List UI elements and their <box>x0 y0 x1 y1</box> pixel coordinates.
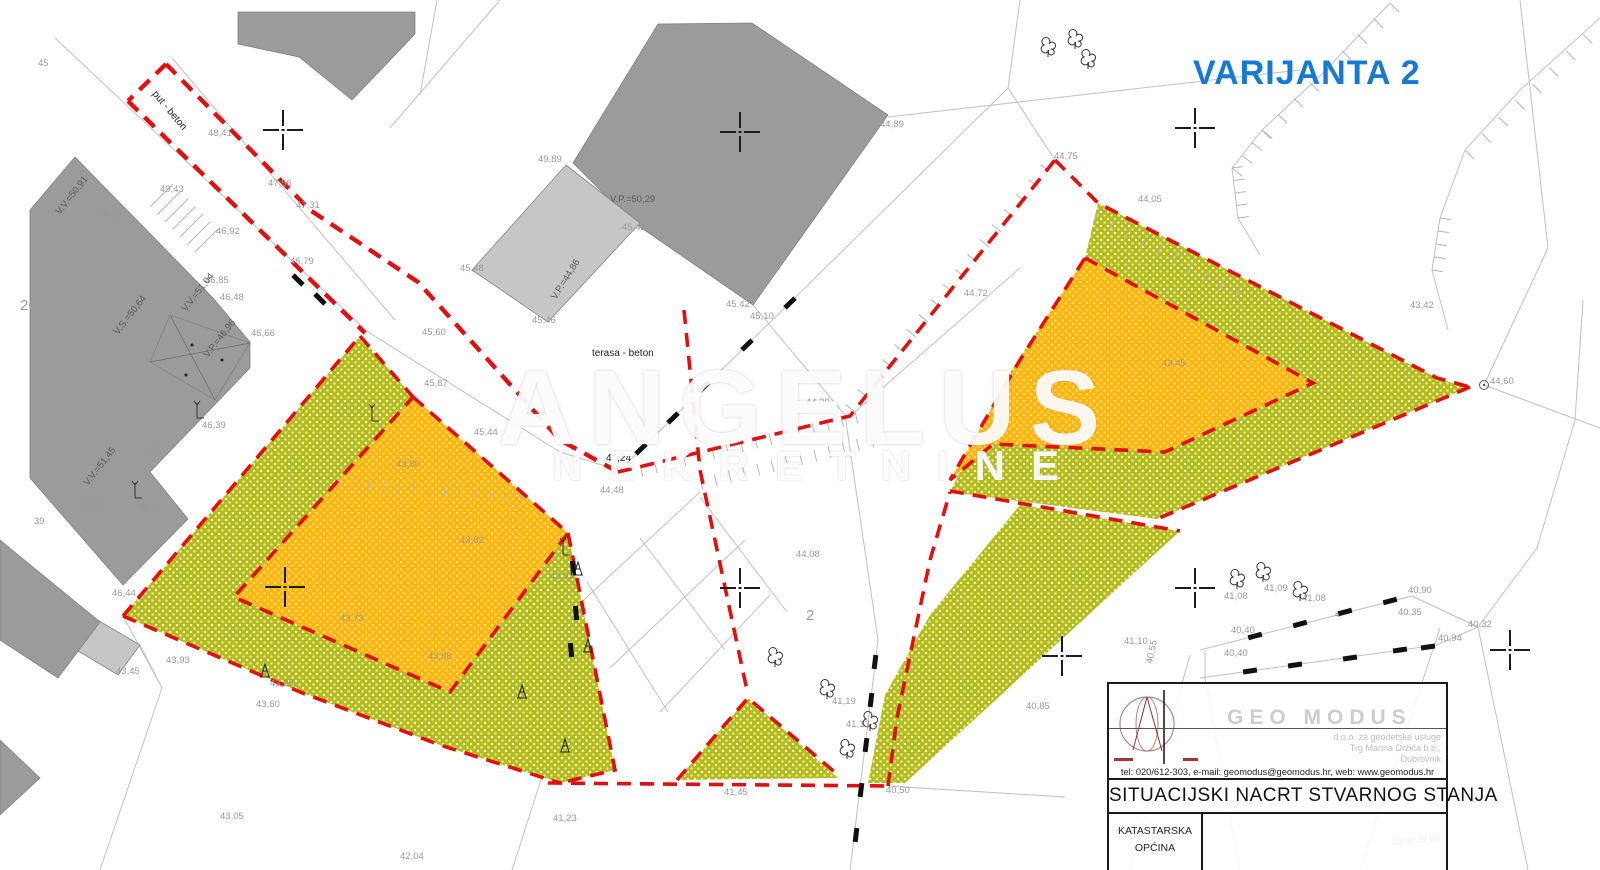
map-label: 43,42 <box>1410 300 1434 311</box>
stairs-line <box>188 222 211 245</box>
map-label: 39 <box>34 516 45 527</box>
map-label: 41,09 <box>1264 583 1288 594</box>
map-label: 46,66 <box>251 328 275 339</box>
tree-icon <box>840 739 854 759</box>
survey-cross-icon <box>263 110 303 150</box>
map-label: 46,92 <box>216 226 240 237</box>
survey-cross-icon <box>1490 630 1530 670</box>
green-triangle-mid <box>677 698 838 780</box>
slope-tick <box>1566 51 1575 60</box>
title-block-header: GEO MODUS d.o.o. za geodetske usluge Trg… <box>1109 684 1446 778</box>
map-label: 47,56 <box>268 178 292 189</box>
map-label: 45,46 <box>532 315 556 326</box>
title-block-table: KATASTARSKA OPĆINA <box>1109 812 1446 870</box>
map-label: 43,45 <box>1162 358 1186 369</box>
map-label: 2 <box>806 607 814 624</box>
map-label: 44,75 <box>1054 151 1078 162</box>
map-label: 44,60 <box>1490 376 1514 387</box>
wall-dash-mark <box>1288 662 1303 669</box>
map-label: 43,73 <box>340 613 364 624</box>
cadastral-label-line: OPĆINA <box>1109 840 1201 857</box>
stairs-line <box>180 214 203 237</box>
slope-tick <box>1436 244 1447 246</box>
survey-cross-icon <box>1175 108 1215 148</box>
slope-tick <box>1390 3 1399 12</box>
company-address-line: Dubrovnik <box>1333 754 1441 765</box>
slope-tick <box>1440 218 1451 220</box>
map-label: 46,79 <box>290 256 314 267</box>
map-label: 45,60 <box>422 327 446 338</box>
slope-tick <box>1434 257 1445 259</box>
slope-tick <box>1482 134 1491 143</box>
map-label: 41,19 <box>832 696 856 707</box>
map-label: 48,41 <box>208 128 232 139</box>
map-label: 41,23 <box>553 813 577 824</box>
map-label: 49,89 <box>538 154 562 165</box>
stairs-line <box>165 199 188 222</box>
slope-tick <box>1516 101 1525 110</box>
slope-tick <box>1438 231 1449 233</box>
map-label: 43,05 <box>220 811 244 822</box>
document-title: SITUACIJSKI NACRT STVARNOG STANJA <box>1109 778 1446 812</box>
map-label: 40,35 <box>1398 607 1422 618</box>
map-label: 45,42 <box>726 299 750 310</box>
map-label: 40,90 <box>1408 585 1432 596</box>
wall-dash-mark <box>313 292 326 305</box>
company-address-line: d.o.o. za geodetske usluge <box>1333 732 1441 743</box>
tree-icon <box>1256 562 1270 582</box>
slope-tick <box>1358 35 1367 44</box>
map-label: put - beton <box>150 89 189 133</box>
slope-tick <box>980 239 989 247</box>
building <box>0 740 40 815</box>
map-label: 44,72 <box>964 288 988 299</box>
building <box>0 540 100 678</box>
slope-tick <box>1237 204 1248 205</box>
tree-icon <box>1068 29 1082 49</box>
map-label: 40,32 <box>1468 619 1492 630</box>
slope-tick <box>1549 68 1558 77</box>
wall-dash-mark <box>1383 597 1398 605</box>
map-label: 44,08 <box>796 549 820 560</box>
slope-tick <box>992 224 1001 232</box>
map-label: 48,25 <box>98 210 122 221</box>
tree-icon <box>1230 569 1244 589</box>
wall-dash-mark <box>872 655 879 670</box>
map-label: 2,04 <box>142 444 161 455</box>
map-label: 42,04 <box>400 851 424 862</box>
building <box>573 23 888 305</box>
wall-dash-mark <box>1243 668 1258 675</box>
tree-icon <box>768 647 782 667</box>
slope-tick <box>1242 155 1252 163</box>
wall-dash-mark <box>1393 647 1408 654</box>
slope-tick <box>1465 150 1474 159</box>
survey-cross-icon <box>1175 568 1215 608</box>
page-title: VARIJANTA 2 <box>1193 54 1421 93</box>
building <box>238 12 415 100</box>
map-label: 45,42 <box>622 222 646 233</box>
map-label: 47,31 <box>296 200 320 211</box>
title-block: GEO MODUS d.o.o. za geodetske usluge Trg… <box>1107 682 1448 870</box>
stairs-line <box>173 207 196 230</box>
slope-tick <box>907 329 916 337</box>
slope-tick <box>1234 179 1245 180</box>
cadastral-municipality-cell: KATASTARSKA OPĆINA <box>1109 814 1203 870</box>
slope-tick <box>1262 130 1272 138</box>
map-label: V.P.=50,29 <box>610 194 655 205</box>
map-label: 43,20 <box>270 678 294 689</box>
map-label: 41,08 <box>1224 591 1248 602</box>
map-label: 45 <box>38 58 49 69</box>
map-label: 43,45 <box>116 666 140 677</box>
map-label: 45,44 <box>474 427 498 438</box>
slope-tick <box>1294 98 1303 107</box>
map-label: 45,48 <box>460 263 484 274</box>
map-label: 43,80 <box>396 459 420 470</box>
map-label: 40,40 <box>1231 625 1255 636</box>
tree-icon <box>1041 37 1055 57</box>
cadastral-label-line: KATASTARSKA <box>1109 823 1201 840</box>
map-label: 46,48 <box>220 292 244 303</box>
map-label: 43,88 <box>428 651 452 662</box>
wall-dash-mark <box>783 296 797 309</box>
watermark-line2: NEKRETNINE <box>552 442 1085 490</box>
map-label: 41,10 <box>1124 636 1148 647</box>
map-label: 43,93 <box>550 571 574 582</box>
wall-dash-mark <box>868 693 875 708</box>
company-address: d.o.o. za geodetske usluge Trg Marina Dr… <box>1333 732 1441 764</box>
cadastral-value-cell <box>1203 814 1446 870</box>
logo-red-dash <box>1114 758 1133 761</box>
tree-icon <box>1081 49 1095 69</box>
map-label: 41,13 <box>846 719 870 730</box>
slope-tick <box>1252 143 1262 151</box>
map-label: 46,62 <box>196 383 220 394</box>
map-label: 40,94 <box>1438 633 1462 644</box>
map-label: 46,58 <box>80 499 104 510</box>
map-label: 46,42 <box>138 501 162 512</box>
slope-tick <box>919 314 928 322</box>
map-label: 45,10 <box>750 311 774 322</box>
map-label: 45,87 <box>424 378 448 389</box>
map-label: 43,93 <box>166 655 190 666</box>
map-label: 43,60 <box>256 699 280 710</box>
slope-tick <box>1235 192 1246 193</box>
slope-tick <box>1278 114 1287 123</box>
map-label: 46,44 <box>112 588 136 599</box>
map-label: 41,08 <box>1302 593 1326 604</box>
stairs-line <box>195 229 218 252</box>
map-label: 43,82 <box>460 535 484 546</box>
map-label: 46,39 <box>202 420 226 431</box>
slope-tick <box>1499 117 1508 126</box>
map-label: 40,40 <box>1224 648 1248 659</box>
slope-tick <box>1374 19 1383 28</box>
slope-tick <box>1432 270 1443 272</box>
map-label: 49,43 <box>160 184 184 195</box>
slope-tick <box>1583 35 1592 44</box>
wall-dash-mark <box>291 273 304 286</box>
site-plan-page: 4548,25put - beton48,4149,4347,5647,3146… <box>0 0 1600 870</box>
wall-dash-mark <box>1343 655 1358 662</box>
junction-circle-dot <box>1483 384 1485 386</box>
slope-tick <box>1238 217 1249 218</box>
map-label: 44,05 <box>1138 194 1162 205</box>
survey-cross-icon <box>720 568 760 608</box>
slope-tick <box>1232 167 1243 168</box>
wall-dash-mark <box>1293 620 1308 628</box>
wall-dash-mark <box>853 828 860 843</box>
map-label: 40,50 <box>886 785 910 796</box>
slope-tick <box>1232 168 1242 176</box>
slope-tick <box>1533 84 1542 93</box>
map-label: 40,85 <box>1026 701 1050 712</box>
company-name: GEO MODUS <box>1227 706 1412 730</box>
map-label: 26 <box>20 297 37 314</box>
map-label: 41,45 <box>724 787 748 798</box>
company-address-line: Trg Marina Držića b.b., <box>1333 743 1441 754</box>
map-label: ≈ <box>1335 610 1340 621</box>
company-contact: tel: 020/612-303, e-mail: geomodus@geomo… <box>1109 767 1446 777</box>
map-label: 44,89 <box>880 119 904 130</box>
wall-dash-mark <box>863 738 870 753</box>
logo-red-dash <box>1183 758 1198 761</box>
